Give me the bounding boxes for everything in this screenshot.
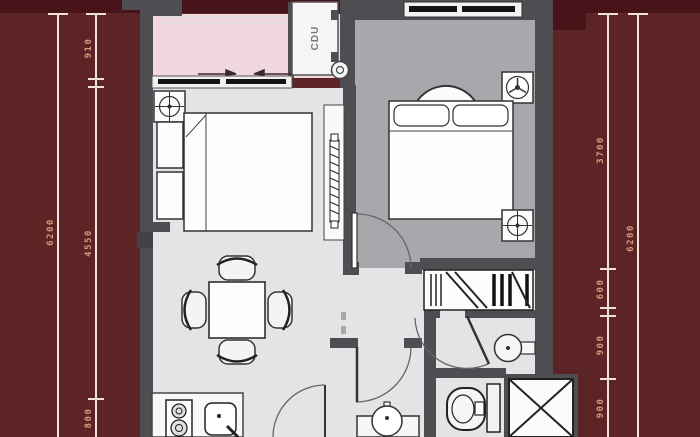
nightstand-bottom — [157, 172, 183, 219]
cdu-closet: CDU — [292, 2, 338, 75]
ceiling-light-icon-left — [154, 91, 185, 122]
bed-right — [389, 101, 513, 219]
wall-right — [535, 16, 553, 376]
door-jamb-bedroom2-right — [405, 262, 422, 274]
stove-icon — [166, 400, 192, 437]
kitchen-counter — [152, 393, 243, 437]
dim-right-inner-seg0: 3700 — [596, 136, 606, 164]
floorplan-svg: CDU — [0, 0, 700, 437]
dim-right-inner-seg2: 900 — [596, 335, 606, 356]
dim-right-inner-seg1: 600 — [596, 279, 606, 300]
bed-left — [184, 113, 312, 231]
dim-left-inner-seg0: 910 — [84, 38, 94, 59]
wall-toilet-niche — [436, 368, 506, 378]
door-jamb-hall-left — [330, 338, 358, 348]
wall-above-wardrobe — [420, 258, 535, 270]
drain-pipe-icon — [332, 62, 349, 79]
cdu-label: CDU — [310, 26, 321, 51]
wall-bathroom-vertical — [424, 310, 436, 437]
dim-left-inner-seg2: 800 — [84, 408, 94, 429]
shaft-x-icon — [504, 374, 578, 437]
dim-right-inner-seg3: 900 — [596, 398, 606, 419]
right-bedroom-window — [404, 2, 522, 17]
dim-left-outer-total: 6200 — [46, 218, 56, 246]
wall-stub-left-bedroom — [140, 222, 170, 232]
dim-left-inner-seg1: 4550 — [84, 229, 94, 257]
tv-panel-icon — [324, 105, 344, 240]
wall-bathroom-top-right — [465, 310, 535, 318]
dining-table — [209, 282, 265, 338]
kitchen-sink-icon — [205, 403, 238, 437]
wardrobe-icon — [424, 270, 533, 310]
dim-right-outer-total: 6200 — [626, 224, 636, 252]
ceiling-light-icon-right — [502, 210, 533, 241]
balcony-window — [152, 76, 292, 88]
wall-notch-left — [137, 232, 153, 248]
floorplan-canvas: CDU — [0, 0, 700, 437]
top-right-dark-block — [552, 0, 586, 30]
nightstand-top — [157, 122, 183, 168]
door-jamb-hall-right — [404, 338, 422, 348]
fan-icon — [502, 72, 533, 103]
toilet-icon — [447, 384, 500, 432]
